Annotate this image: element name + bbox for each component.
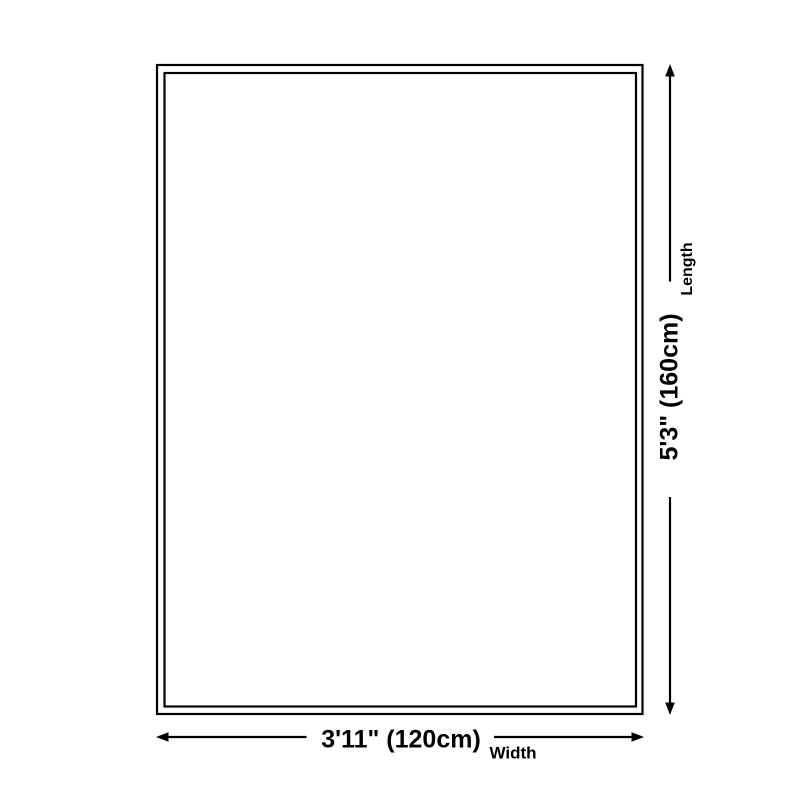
svg-text:5'3" (160cm): 5'3" (160cm) bbox=[656, 313, 684, 460]
svg-text:3'11" (120cm): 3'11" (120cm) bbox=[321, 726, 481, 754]
svg-text:Length: Length bbox=[679, 242, 696, 295]
svg-text:Width: Width bbox=[490, 744, 537, 763]
